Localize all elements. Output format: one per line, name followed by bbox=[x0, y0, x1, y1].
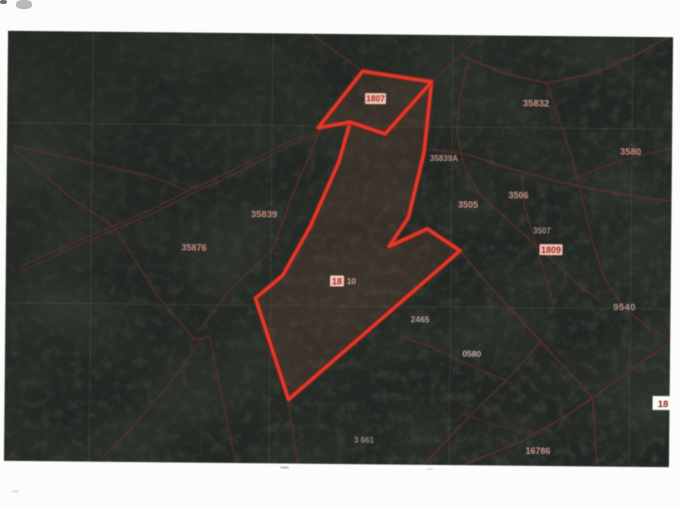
svg-text:1809: 1809 bbox=[541, 245, 561, 255]
svg-text:0580: 0580 bbox=[462, 349, 481, 359]
svg-text:3505: 3505 bbox=[458, 200, 478, 210]
svg-text:10: 10 bbox=[347, 276, 357, 286]
svg-text:3507: 3507 bbox=[533, 226, 551, 235]
svg-text:3 661: 3 661 bbox=[354, 436, 375, 445]
svg-text:16786: 16786 bbox=[525, 446, 550, 456]
svg-text:35839: 35839 bbox=[251, 209, 278, 220]
svg-text:9540: 9540 bbox=[613, 302, 636, 313]
svg-text:3580: 3580 bbox=[620, 147, 641, 158]
svg-text:35832: 35832 bbox=[523, 98, 550, 109]
svg-text:35839A: 35839A bbox=[430, 154, 458, 163]
svg-text:35876: 35876 bbox=[181, 243, 206, 253]
svg-text:2465: 2465 bbox=[411, 314, 430, 324]
svg-text:18: 18 bbox=[332, 276, 342, 286]
svg-text:1807: 1807 bbox=[366, 93, 385, 103]
svg-text:3506: 3506 bbox=[508, 190, 528, 200]
svg-text:18: 18 bbox=[658, 399, 669, 410]
